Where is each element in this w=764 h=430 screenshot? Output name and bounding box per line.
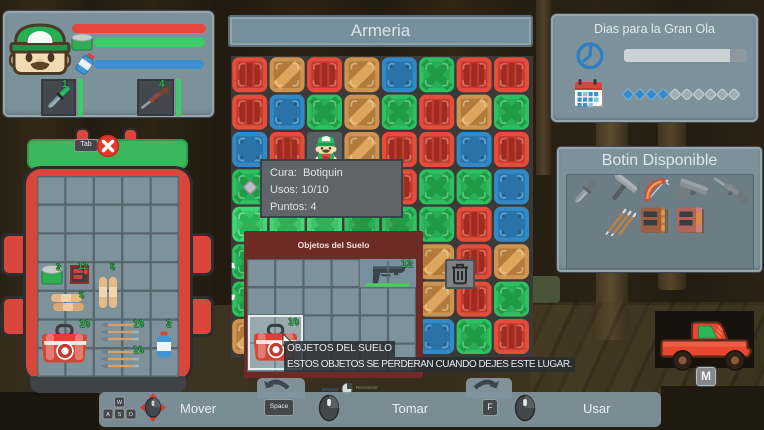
svg-text:D: D [129, 412, 133, 418]
svg-text:W: W [117, 400, 123, 406]
svg-text:A: A [106, 412, 110, 418]
svg-text:S: S [118, 412, 122, 418]
